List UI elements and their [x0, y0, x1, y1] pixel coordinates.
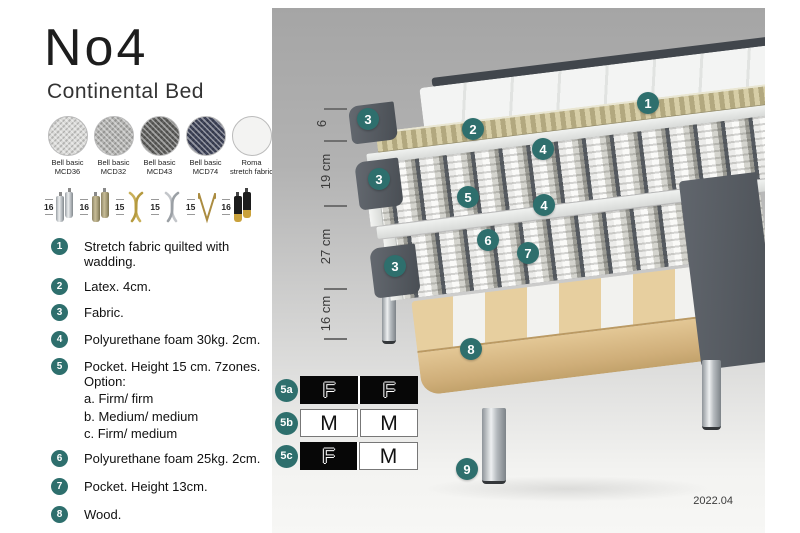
legend-text: Pocket. Height 13cm. — [84, 478, 208, 494]
fabric-swatch: Bell basicMCD32 — [92, 116, 135, 176]
diagram-badge-2: 2 — [462, 118, 484, 140]
legend-item-4: 4 Polyurethane foam 30kg. 2cm. — [51, 331, 276, 348]
legend-suboption-b: b. Medium/ medium — [84, 409, 276, 425]
silver-twist-leg-icon — [162, 190, 182, 224]
firmness-badge-5a: 5a — [275, 379, 298, 402]
legend-text: Wood. — [84, 506, 121, 522]
dimension-tick — [324, 140, 347, 142]
legend-item-8: 8 Wood. — [51, 506, 276, 523]
firmness-option-5b: 5b M M — [275, 409, 418, 437]
bed-cutaway-panel: 6 19 cm 27 cm 16 cm 1 2 3 3 3 4 4 5 6 — [272, 8, 765, 533]
dimension-label-6: 6 — [314, 120, 329, 127]
legend-suboption-c: c. Firm/ medium — [84, 426, 276, 442]
dimension-label-16cm: 16 cm — [318, 296, 333, 331]
leg-height: 15 — [115, 202, 124, 212]
black-gold-cylinder-leg-icon — [233, 190, 253, 224]
legend-text: Pocket. Height 15 cm. 7zones. Option: — [84, 358, 276, 389]
firmness-badge-5c: 5c — [275, 445, 298, 468]
firmness-option-5c: 5c F M — [275, 442, 418, 470]
legend-number-badge: 7 — [51, 478, 68, 495]
product-title: No4 — [44, 18, 148, 78]
diagram-badge-4: 4 — [533, 194, 555, 216]
leg-option: 16 — [44, 186, 75, 228]
leg-option: 15 — [186, 186, 217, 228]
bed-leg-center — [482, 408, 506, 484]
diagram-badge-3: 3 — [384, 255, 406, 277]
firmness-cell: M — [300, 409, 358, 437]
firmness-badge-5b: 5b — [275, 412, 298, 435]
diagram-badge-6: 6 — [477, 229, 499, 251]
diagram-badge-7: 7 — [517, 242, 539, 264]
dimension-label-19cm: 19 cm — [318, 154, 333, 189]
legend-item-3: 3 Fabric. — [51, 304, 276, 321]
legend-text: Polyurethane foam 30kg. 2cm. — [84, 331, 260, 347]
leg-option: 16 — [79, 186, 110, 228]
fabric-swatches: Bell basicMCD36 Bell basicMCD32 Bell bas… — [46, 116, 273, 176]
fabric-swatch: Romastretch fabric — [230, 116, 273, 176]
diagram-badge-8: 8 — [460, 338, 482, 360]
leg-option: 15 — [150, 186, 181, 228]
firmness-cell: M — [360, 409, 418, 437]
legend-item-7: 7 Pocket. Height 13cm. — [51, 478, 276, 495]
fabric-swatch-icon — [48, 116, 88, 156]
fabric-code: MCD32 — [101, 167, 126, 176]
legend-item-5: 5 Pocket. Height 15 cm. 7zones. Option: — [51, 358, 276, 389]
fabric-swatch-icon — [232, 116, 272, 156]
firmness-cell: F — [300, 442, 357, 470]
legend-number-badge: 5 — [51, 358, 68, 375]
diagram-badge-4: 4 — [532, 138, 554, 160]
bed-leg-far-left — [382, 296, 396, 344]
firmness-cell: F — [300, 376, 358, 404]
legend-item-1: 1 Stretch fabric quilted with wadding. — [51, 238, 276, 269]
infographic: No4 Continental Bed Bell basicMCD36 Bell… — [0, 0, 800, 533]
bed-leg-right — [702, 360, 721, 430]
diagram-badge-3: 3 — [368, 168, 390, 190]
legend-number-badge: 4 — [51, 331, 68, 348]
fabric-code: stretch fabric — [230, 167, 273, 176]
gold-twist-leg-icon — [126, 190, 146, 224]
fabric-swatch: Bell basicMCD74 — [184, 116, 227, 176]
leg-option: 15 — [115, 186, 146, 228]
fabric-swatch-icon — [94, 116, 134, 156]
leg-height: 16 — [79, 202, 88, 212]
fabric-swatch-icon — [186, 116, 226, 156]
fabric-code: MCD43 — [147, 167, 172, 176]
legend-suboption-a: a. Firm/ firm — [84, 391, 276, 407]
dimension-tick — [324, 205, 347, 207]
version-label: 2022.04 — [693, 495, 733, 507]
legend-list: 1 Stretch fabric quilted with wadding. 2… — [51, 238, 276, 533]
legend-item-6: 6 Polyurethane foam 25kg. 2cm. — [51, 450, 276, 467]
diagram-badge-9: 9 — [456, 458, 478, 480]
diagram-badge-3: 3 — [357, 108, 379, 130]
leg-height: 15 — [186, 202, 195, 212]
legend-text: Fabric. — [84, 304, 124, 320]
firmness-option-5a: 5a F F — [275, 376, 418, 404]
legend-text: Latex. 4cm. — [84, 278, 151, 294]
brass-cylinder-leg-icon — [91, 190, 111, 224]
leg-option: 16 — [221, 186, 252, 228]
legend-number-badge: 2 — [51, 278, 68, 295]
fabric-code: MCD36 — [55, 167, 80, 176]
legend-text: Stretch fabric quilted with wadding. — [84, 238, 276, 269]
leg-height: 15 — [150, 202, 159, 212]
legend-number-badge: 6 — [51, 450, 68, 467]
leg-options: 16 16 15 15 15 16 — [44, 186, 253, 228]
fabric-swatch-icon — [140, 116, 180, 156]
leg-height: 16 — [44, 202, 53, 212]
dimension-label-27cm: 27 cm — [318, 229, 333, 264]
legend-number-badge: 8 — [51, 506, 68, 523]
leg-height: 16 — [221, 202, 230, 212]
diagram-badge-1: 1 — [637, 92, 659, 114]
fabric-code: MCD74 — [193, 167, 218, 176]
legend-text: Polyurethane foam 25kg. 2cm. — [84, 450, 260, 466]
product-subtitle: Continental Bed — [47, 80, 204, 104]
hairpin-leg-icon — [197, 190, 217, 224]
legend-item-2: 2 Latex. 4cm. — [51, 278, 276, 295]
dimension-tick — [324, 338, 347, 340]
firmness-cell: F — [360, 376, 418, 404]
dimension-tick — [324, 288, 347, 290]
legend-number-badge: 3 — [51, 304, 68, 321]
legend-number-badge: 1 — [51, 238, 68, 255]
fabric-swatch: Bell basicMCD43 — [138, 116, 181, 176]
dimension-tick — [324, 108, 347, 110]
diagram-badge-5: 5 — [457, 186, 479, 208]
chrome-cylinder-leg-icon — [55, 190, 75, 224]
fabric-swatch: Bell basicMCD36 — [46, 116, 89, 176]
firmness-cell: M — [359, 442, 418, 470]
